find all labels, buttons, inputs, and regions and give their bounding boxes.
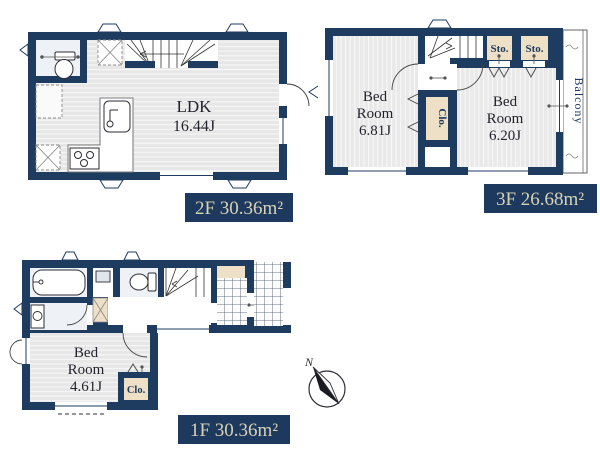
- area-label-2f: 2F 30.36m²: [185, 193, 293, 222]
- casement-arc: [10, 340, 22, 364]
- bed1f-size: 4.61J: [70, 379, 102, 395]
- entrance-tiles: [217, 278, 247, 325]
- 2f-toilet-room: [36, 40, 87, 83]
- ldk-name: LDK: [177, 97, 213, 116]
- bed1-line2: Room: [357, 106, 394, 122]
- 2f-dashed-area: [36, 85, 62, 118]
- 2f-stairs: [125, 40, 218, 68]
- 1f-hall-floor: [108, 297, 211, 325]
- bed1-line1: Bed: [363, 89, 388, 105]
- floorplan-2f: LDK 16.44J 2F 30.36m²: [20, 24, 309, 222]
- 1f-porch: [254, 262, 291, 326]
- area-label-3f: 3F 26.68m²: [484, 184, 597, 213]
- floorplan-drawing: LDK 16.44J 2F 30.36m² Balcony: [0, 0, 600, 450]
- bed2-line2: Room: [487, 111, 524, 127]
- door-arc: [287, 84, 309, 106]
- area-label-3f-text: 3F 26.68m²: [496, 189, 584, 210]
- floorplan-1f: Clo. Bed Room 4.61J 1F 30.36m²: [10, 252, 291, 444]
- kitchen-sink-icon: [104, 101, 130, 132]
- closet-1f-label: Clo.: [127, 385, 146, 396]
- area-label-1f-text: 1F 30.36m²: [190, 420, 278, 441]
- washer-icon: [96, 271, 110, 282]
- 3f-balcony: Balcony: [563, 30, 587, 173]
- 2f-hatch-square-bottom: [36, 145, 60, 170]
- bed1-size: 6.81J: [359, 123, 391, 139]
- area-label-1f: 1F 30.36m²: [178, 415, 290, 444]
- 1f-stairs: [158, 268, 211, 297]
- porch-tiles: [254, 262, 283, 326]
- toilet-icon-1f: [130, 273, 156, 291]
- floorplan-3f: Balcony Sto. Sto.: [309, 20, 597, 213]
- bed2-size: 6.20J: [489, 128, 521, 144]
- 2f-hatch-square-top: [98, 40, 122, 65]
- closet-3f-label: Clo.: [436, 108, 448, 128]
- storage1-label: Sto.: [490, 43, 508, 55]
- bed1f-line1: Bed: [74, 345, 99, 361]
- stove-icon: [70, 148, 99, 169]
- compass: N: [304, 355, 345, 407]
- bed1f-line2: Room: [68, 362, 105, 378]
- 1f-shelf: [93, 298, 108, 322]
- compass-north-label: N: [304, 355, 314, 369]
- floorplan-page: LDK 16.44J 2F 30.36m² Balcony: [0, 0, 600, 450]
- washbasin-icon: [31, 305, 44, 328]
- shoe-cabinet: [217, 266, 245, 278]
- storage2-label: Sto.: [525, 43, 543, 55]
- bed2-line1: Bed: [493, 94, 518, 110]
- ldk-size: 16.44J: [173, 118, 215, 135]
- balcony-label: Balcony: [572, 78, 586, 125]
- area-label-2f-text: 2F 30.36m²: [195, 198, 283, 219]
- bathtub-icon: [33, 270, 85, 295]
